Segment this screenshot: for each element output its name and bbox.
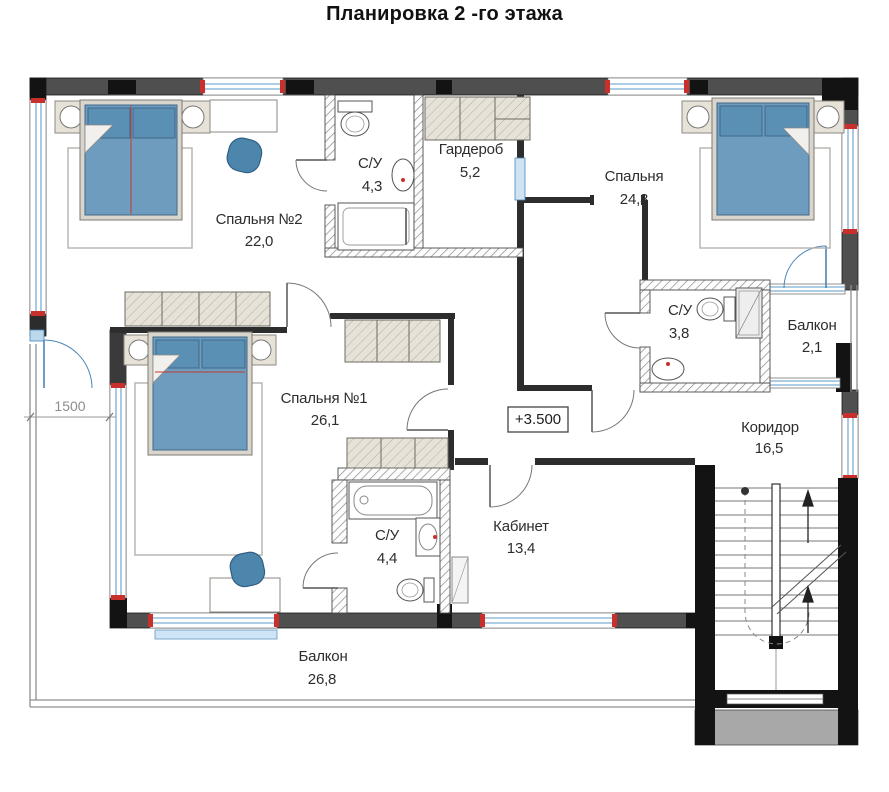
window xyxy=(200,78,285,95)
window xyxy=(148,613,279,628)
lamp xyxy=(251,340,271,360)
door-arc xyxy=(296,160,327,191)
wardrobe-unit xyxy=(125,292,270,326)
study-area: 13,4 xyxy=(507,540,535,557)
double-bed xyxy=(80,100,182,220)
shower-tray xyxy=(338,203,414,250)
wardrobe-label: Гардероб xyxy=(439,141,503,158)
balcony-bottom-area: 26,8 xyxy=(308,671,336,688)
double-bed xyxy=(148,332,252,455)
window xyxy=(605,78,689,95)
window xyxy=(842,413,858,480)
lamp xyxy=(129,340,149,360)
bedroom1-label: Спальня №1 xyxy=(281,390,368,407)
bath-top-area: 4,3 xyxy=(362,178,382,195)
bath-right-label: С/У xyxy=(668,302,693,319)
door-arc xyxy=(287,283,331,327)
sink xyxy=(416,518,440,556)
bedroom1-area: 26,1 xyxy=(311,412,339,429)
door-arc xyxy=(407,389,448,430)
stairs-up-arrow xyxy=(803,491,813,633)
sink xyxy=(392,159,414,191)
lamp xyxy=(60,106,82,128)
dimension-value: 1500 xyxy=(54,398,85,414)
master-bedroom-label: Спальня xyxy=(605,168,664,185)
master-bedroom-furniture xyxy=(682,98,844,248)
bath-bottom-area: 4,4 xyxy=(377,550,397,567)
balcony-door-arc xyxy=(784,246,826,288)
toilet xyxy=(397,578,434,602)
double-bed xyxy=(712,98,814,220)
balcony-bottom-label: Балкон xyxy=(298,648,347,665)
study-label: Кабинет xyxy=(493,518,549,535)
floor-plan-drawing: +3.500 1500 Спальня №2 22,0 С/У 4,3 Гард… xyxy=(0,0,889,792)
corridor-area: 16,5 xyxy=(755,440,783,457)
study-cabinet xyxy=(452,557,468,603)
bedroom1-furniture xyxy=(124,320,448,612)
bedroom2-label: Спальня №2 xyxy=(216,211,303,228)
desk xyxy=(210,100,277,132)
balcony-door-arc xyxy=(30,330,92,388)
bath-bottom-label: С/У xyxy=(375,527,400,544)
window xyxy=(842,124,858,234)
window xyxy=(30,98,46,316)
master-bedroom-area: 24,3 xyxy=(620,191,648,208)
bathtub xyxy=(349,482,437,519)
balcony-right-label: Балкон xyxy=(787,317,836,334)
bedroom2-area: 22,0 xyxy=(245,233,273,250)
radiator xyxy=(155,630,277,639)
bath-top-fixtures xyxy=(338,101,414,250)
door-arc xyxy=(592,390,634,432)
elevation-mark: +3.500 xyxy=(508,407,568,432)
wardrobe-area: 5,2 xyxy=(460,164,480,181)
corridor-label: Коридор xyxy=(741,419,799,436)
bath-right-area: 3,8 xyxy=(669,325,689,342)
window xyxy=(480,613,617,628)
floor-plan-page: Планировка 2 -го этажа xyxy=(0,0,889,792)
dimension-1500: 1500 xyxy=(24,398,116,421)
toilet xyxy=(338,101,372,136)
door-arc xyxy=(303,553,338,588)
balcony-right-area: 2,1 xyxy=(802,339,822,356)
elevation-value: +3.500 xyxy=(515,411,561,428)
lamp xyxy=(687,106,709,128)
toilet xyxy=(697,297,735,321)
door-arc xyxy=(605,313,640,348)
wardrobe-unit xyxy=(347,438,448,468)
lamp xyxy=(817,106,839,128)
shower xyxy=(736,288,762,338)
staircase xyxy=(695,465,858,745)
chair xyxy=(224,135,264,175)
bath-top-label: С/У xyxy=(358,155,383,172)
window xyxy=(110,383,126,600)
door-arc xyxy=(490,465,532,507)
wardrobe-room-furniture xyxy=(425,97,530,140)
wardrobe-unit xyxy=(345,320,440,362)
sink xyxy=(652,358,684,380)
lamp xyxy=(182,106,204,128)
